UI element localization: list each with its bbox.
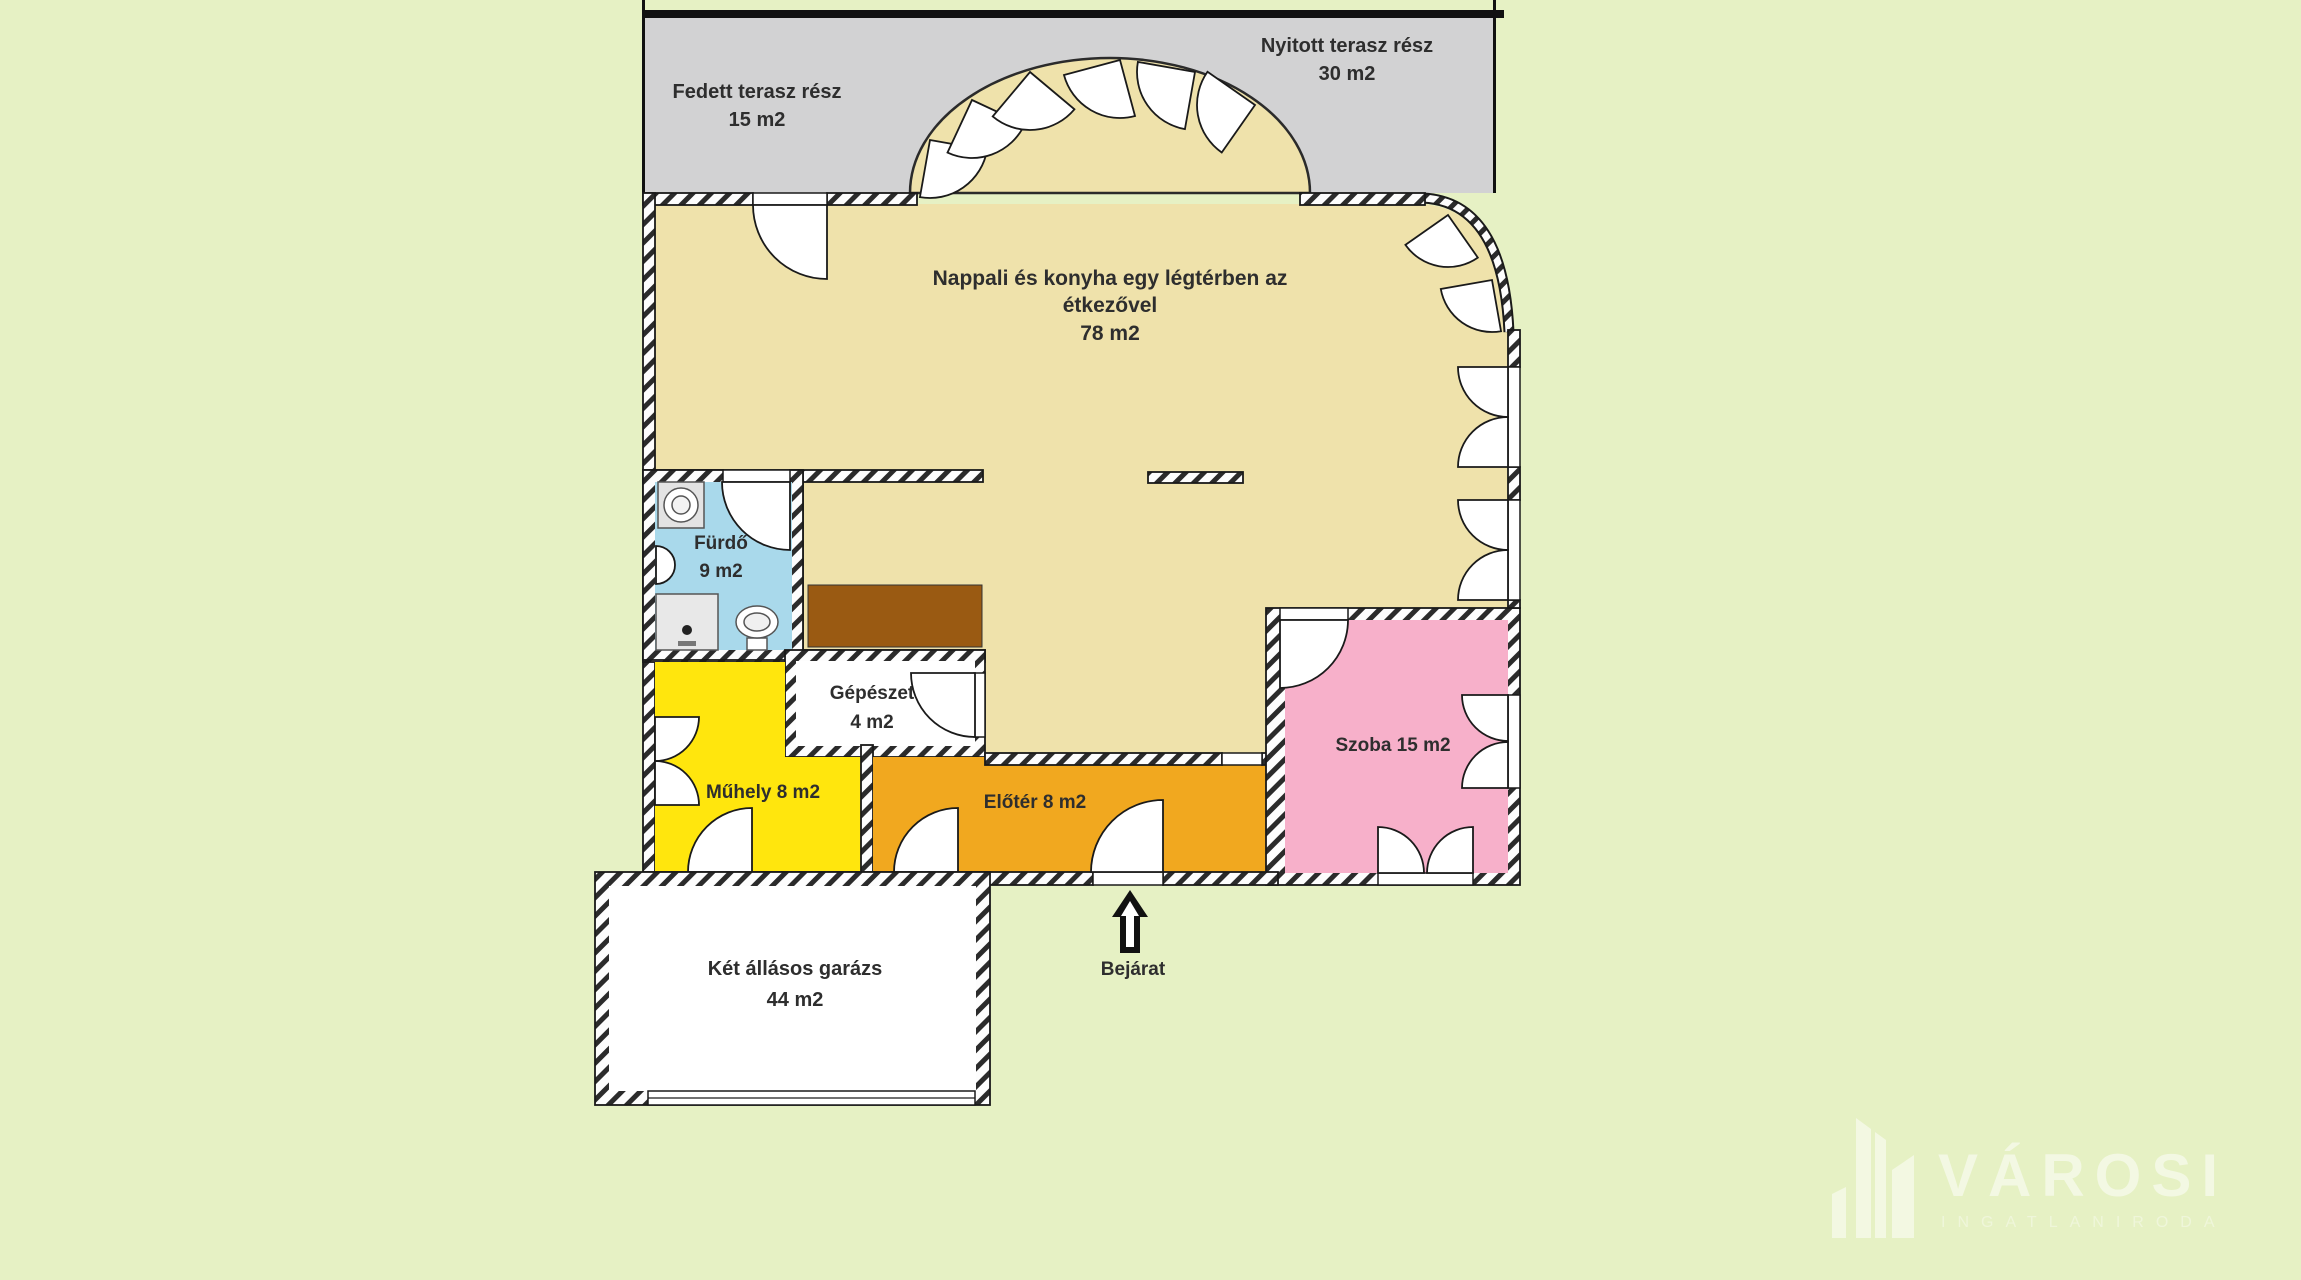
label-workshop: Műhely 8 m2: [706, 782, 820, 803]
label-living-line1: Nappali és konyha egy légtérben az: [933, 267, 1288, 290]
label-garage-area: 44 m2: [767, 989, 824, 1011]
label-bathroom: Fürdő: [694, 533, 748, 554]
label-living-area: 78 m2: [1080, 322, 1140, 345]
watermark-brand: VÁROSI: [1938, 1142, 2228, 1209]
washbasin-icon: [658, 482, 704, 528]
watermark-subtitle: INGATLANIRODA: [1941, 1214, 2227, 1231]
label-entrance: Bejárat: [1101, 959, 1166, 980]
shower-icon: [656, 594, 718, 650]
label-bathroom-area: 9 m2: [699, 561, 742, 582]
label-szoba: Szoba 15 m2: [1335, 735, 1450, 756]
floor-plan-page: Fedett terasz rész 15 m2 Nyitott terasz …: [0, 0, 2301, 1280]
label-garage: Két állásos garázs: [708, 958, 883, 980]
kitchen-counter: [808, 585, 982, 647]
label-covered-terrace: Fedett terasz rész: [673, 81, 842, 103]
label-covered-terrace-area: 15 m2: [729, 109, 786, 131]
label-mechanical-area: 4 m2: [850, 712, 893, 733]
label-open-terrace: Nyitott terasz rész: [1261, 35, 1433, 57]
label-open-terrace-area: 30 m2: [1319, 63, 1376, 85]
label-mechanical: Gépészet: [830, 683, 915, 704]
floor-plan-drawing: Fedett terasz rész 15 m2 Nyitott terasz …: [0, 0, 2301, 1280]
label-living-line2: étkezővel: [1063, 294, 1158, 317]
label-foyer: Előtér 8 m2: [984, 792, 1086, 813]
